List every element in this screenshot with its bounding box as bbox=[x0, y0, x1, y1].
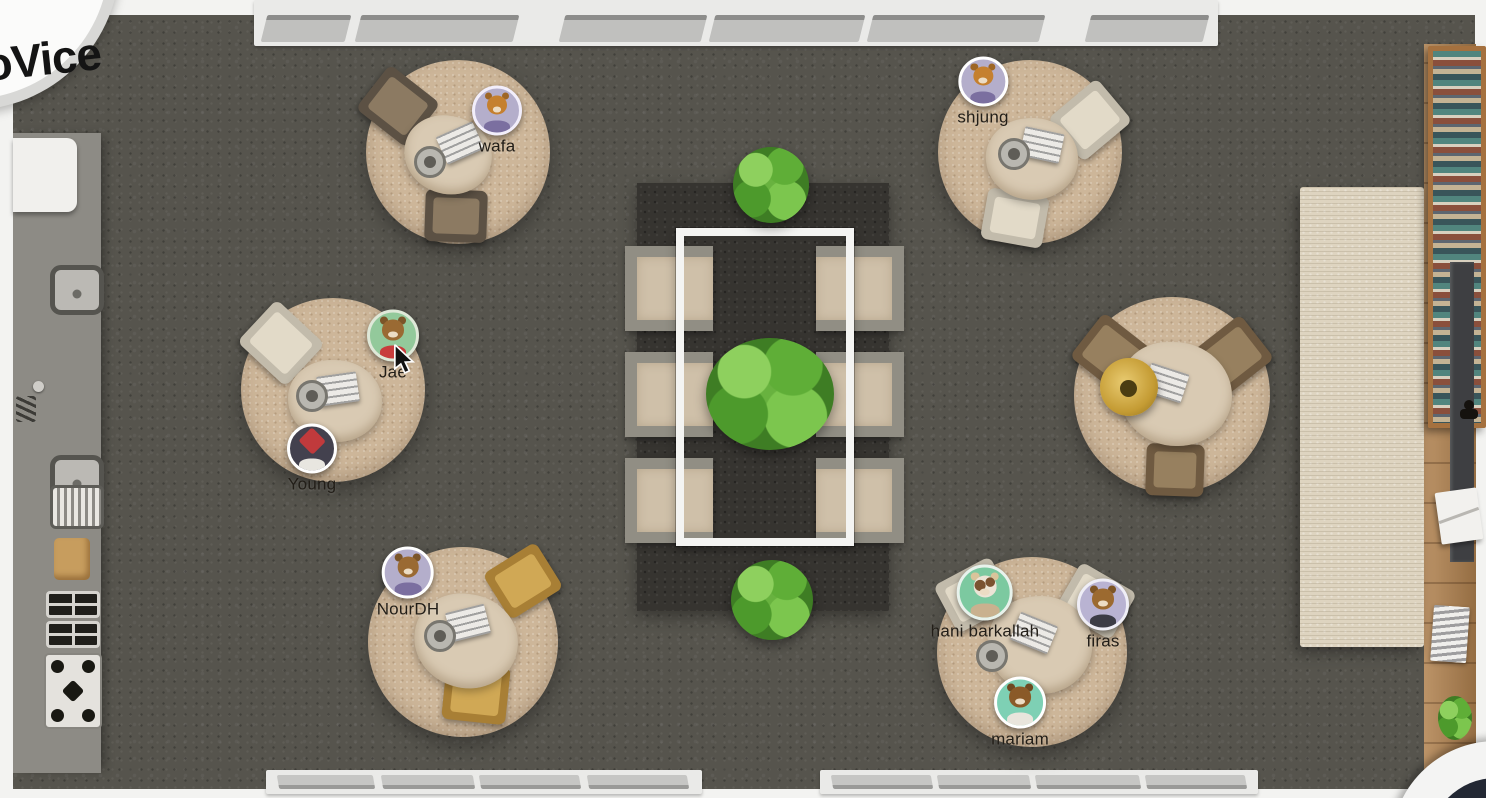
user-shjung[interactable]: shjung bbox=[957, 57, 1008, 128]
cat-avatar-icon[interactable] bbox=[1077, 579, 1129, 631]
avatar-username-label: mariam bbox=[991, 730, 1049, 750]
window-pane bbox=[709, 15, 866, 42]
plant-center-icon bbox=[706, 338, 834, 450]
avatar-username-label: firas bbox=[1086, 632, 1119, 652]
window-pane bbox=[1035, 775, 1141, 789]
chair bbox=[1145, 443, 1205, 497]
window-band-top bbox=[254, 0, 1218, 46]
faucet-knob bbox=[33, 381, 44, 392]
plant-bottom-icon bbox=[731, 560, 813, 640]
refrigerator bbox=[13, 138, 77, 212]
plant-top-icon bbox=[733, 147, 809, 223]
open-book bbox=[1435, 487, 1484, 544]
avatar-username-label: shjung bbox=[957, 108, 1008, 128]
plate-and-cup bbox=[424, 620, 456, 652]
plate-and-cup bbox=[976, 640, 1008, 672]
beige-area-rug bbox=[1300, 187, 1424, 647]
user-hani-barkallah[interactable]: hani barkallah bbox=[931, 565, 1040, 642]
window-band-bottom-left bbox=[266, 770, 702, 794]
user-mariam[interactable]: mariam bbox=[991, 677, 1049, 750]
cow-avatar-icon[interactable] bbox=[957, 565, 1013, 621]
stove-grate bbox=[46, 621, 100, 648]
window-pane bbox=[355, 15, 520, 42]
avatar-username-label: NourDH bbox=[377, 600, 440, 620]
potted-plant-small bbox=[1438, 696, 1472, 740]
user-jae[interactable]: Jae bbox=[367, 310, 419, 383]
mouse-cursor-icon bbox=[393, 344, 419, 379]
plate-and-cup bbox=[998, 138, 1030, 170]
user-wafa[interactable]: wafa bbox=[472, 86, 522, 157]
stove-grate bbox=[46, 591, 100, 618]
window-pane bbox=[559, 15, 708, 42]
partial-edge-glyph-icon bbox=[1460, 400, 1478, 424]
window-pane bbox=[867, 15, 1046, 42]
kitchen-counter bbox=[13, 133, 101, 773]
plate-and-cup bbox=[296, 380, 328, 412]
ovice-logo[interactable]: oVice bbox=[0, 26, 103, 92]
user-young[interactable]: Young bbox=[287, 424, 337, 495]
user-nourdh[interactable]: NourDH bbox=[377, 547, 440, 620]
gas-stove bbox=[44, 653, 102, 729]
wall-bottom bbox=[0, 789, 1486, 798]
grad-avatar-icon[interactable] bbox=[287, 424, 337, 474]
avatar-username-label: Young bbox=[288, 475, 337, 495]
window-pane bbox=[937, 775, 1031, 789]
window-pane bbox=[479, 775, 581, 789]
drying-rack bbox=[50, 485, 104, 529]
gold-side-table bbox=[1100, 358, 1158, 416]
fox-avatar-icon[interactable] bbox=[472, 86, 522, 136]
window-pane bbox=[831, 775, 933, 789]
window-pane bbox=[1145, 775, 1247, 789]
chair bbox=[424, 189, 488, 243]
ovice-virtual-office-floor[interactable]: wafashjungJaeYoungNourDHhani barkallahfi… bbox=[0, 0, 1486, 798]
user-firas[interactable]: firas bbox=[1077, 579, 1129, 652]
wall-left bbox=[0, 0, 13, 798]
window-pane bbox=[381, 775, 475, 789]
window-pane bbox=[1085, 15, 1210, 42]
window-pane bbox=[277, 775, 375, 789]
cutting-board bbox=[54, 538, 90, 580]
vent-grill bbox=[16, 396, 36, 422]
kitchen-sink bbox=[50, 265, 104, 315]
window-band-bottom-right bbox=[820, 770, 1258, 794]
avatar-username-label: wafa bbox=[479, 137, 516, 157]
bear-avatar-icon[interactable] bbox=[382, 547, 434, 599]
stacked-papers bbox=[1430, 605, 1470, 663]
plate-and-cup bbox=[414, 146, 446, 178]
bear-avatar-icon[interactable] bbox=[994, 677, 1046, 729]
window-pane bbox=[261, 15, 352, 42]
avatar-username-label: hani barkallah bbox=[931, 622, 1040, 642]
fox-avatar-icon[interactable] bbox=[958, 57, 1008, 107]
window-pane bbox=[587, 775, 689, 789]
